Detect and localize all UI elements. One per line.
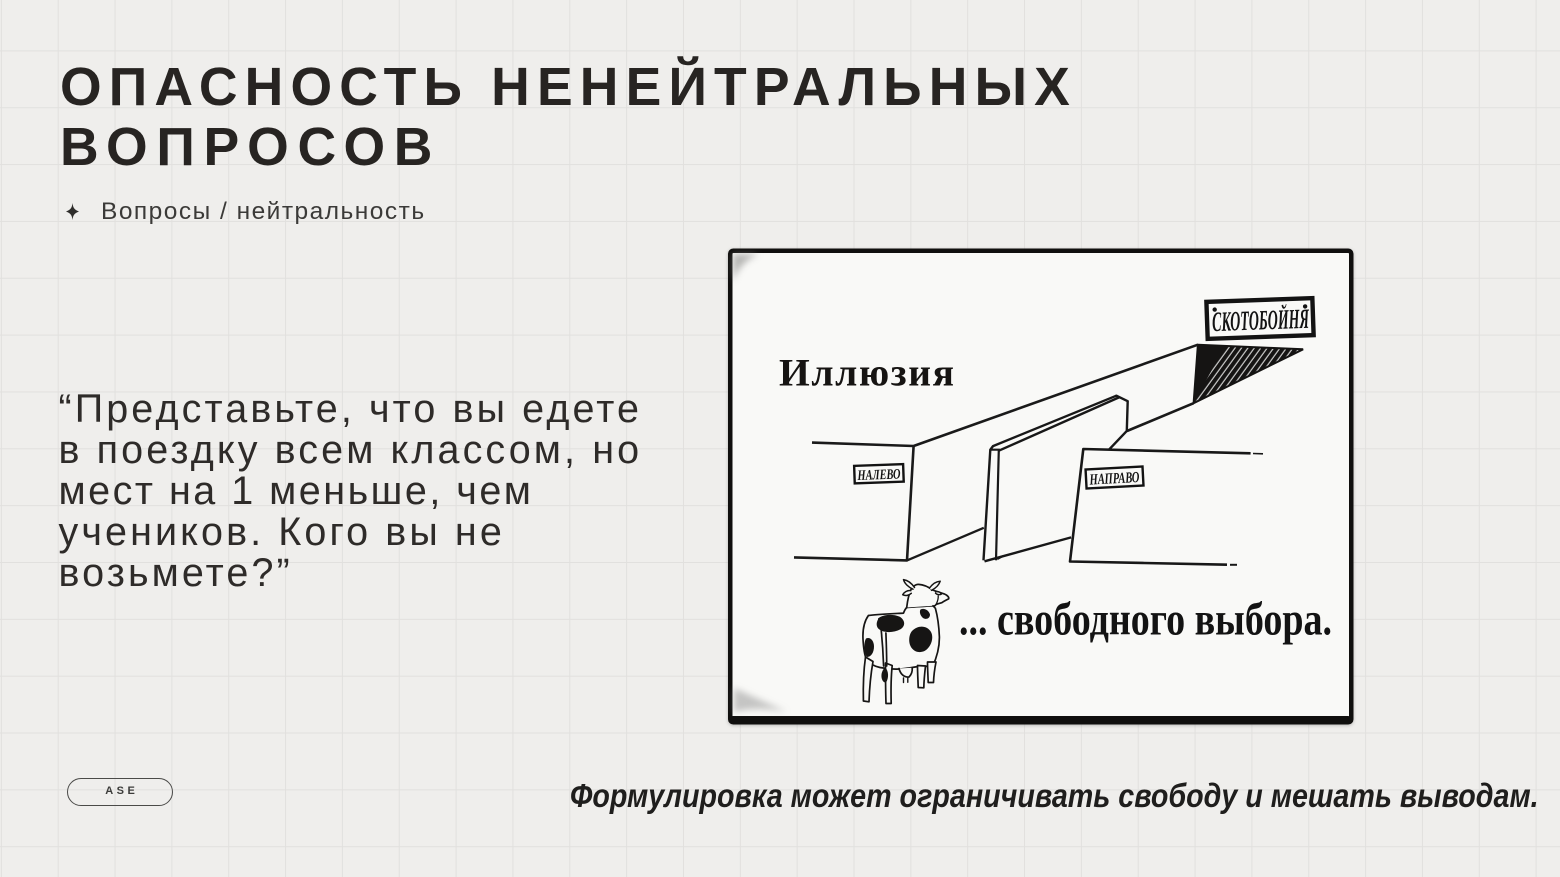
svg-text:Иллюзия: Иллюзия	[779, 351, 954, 395]
svg-text:НАПРАВО: НАПРАВО	[1088, 469, 1140, 489]
svg-text:НАЛЕВО: НАЛЕВО	[856, 467, 901, 485]
svg-text:... свободного выбора.: ... свободного выбора.	[959, 593, 1332, 645]
svg-text:СКОТОБОЙНЯ: СКОТОБОЙНЯ	[1212, 303, 1310, 338]
